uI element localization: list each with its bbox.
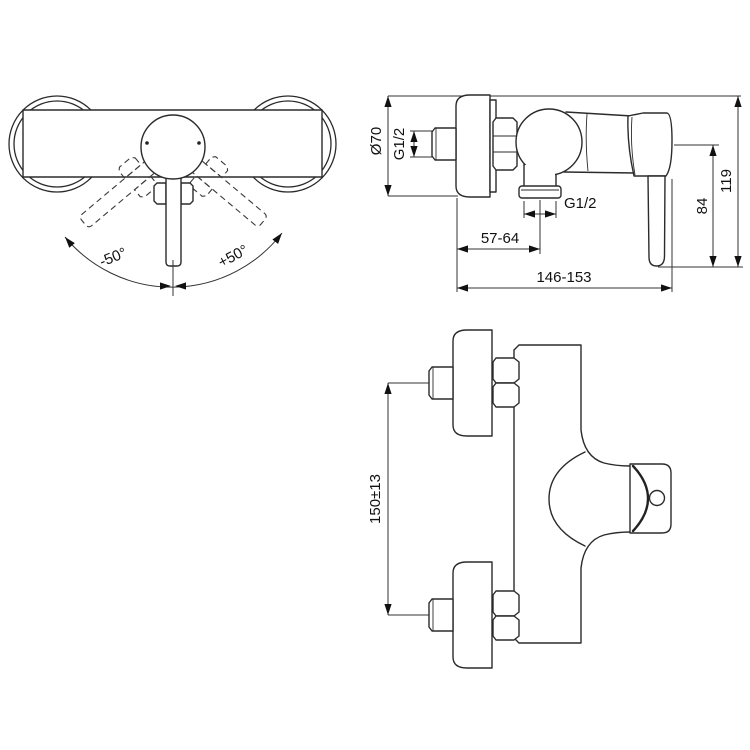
dimension-rosette-diameter: Ø70 xyxy=(368,96,392,196)
top-view: 150±13 xyxy=(367,330,671,668)
top-hex-nut-b xyxy=(493,383,519,407)
rosette-side xyxy=(456,95,490,197)
dim-label-rosette-diameter: Ø70 xyxy=(368,127,385,155)
top-hex-nut-a xyxy=(493,358,519,383)
dim-label-wall-to-outlet: 57-64 xyxy=(481,230,519,247)
handle-cap-side xyxy=(628,113,672,176)
side-view: Ø70 G1/2 G1/2 57-64 xyxy=(368,95,743,292)
dimension-total-height: 119 xyxy=(718,96,742,267)
handle-collar-left xyxy=(154,183,166,204)
hex-nut-side xyxy=(493,118,517,170)
dim-label-inlet-thread: G1/2 xyxy=(391,128,408,161)
handle-dot-right xyxy=(197,141,201,145)
dimension-inlet-center-distance: 150±13 xyxy=(367,383,429,615)
dimension-lever-height: 84 xyxy=(674,145,719,267)
handle-screw-hole xyxy=(650,491,665,506)
top-rosette xyxy=(453,330,492,436)
dimension-inlet-thread: G1/2 xyxy=(391,128,432,161)
handle-lever-side xyxy=(648,176,665,266)
dim-label-total-height: 119 xyxy=(718,169,735,193)
dim-label-outlet-thread: G1/2 xyxy=(564,195,597,212)
handle-collar-right xyxy=(181,183,193,204)
dim-label-inlet-center-distance: 150±13 xyxy=(367,474,384,524)
bottom-hex-nut-b xyxy=(493,616,519,640)
front-view: -50° +50° xyxy=(9,96,336,296)
bottom-rosette xyxy=(453,562,492,668)
outlet-flange xyxy=(519,186,561,198)
bottom-hex-nut-a xyxy=(493,591,519,616)
drawing-canvas: -50° +50° xyxy=(0,0,750,750)
dim-label-positive-angle: +50° xyxy=(215,242,251,272)
dim-label-total-depth: 146-153 xyxy=(536,269,591,286)
dim-label-negative-angle: -50° xyxy=(97,244,129,270)
dim-label-lever-height: 84 xyxy=(694,198,711,215)
handle-dot-left xyxy=(145,141,149,145)
handle-base-circle xyxy=(141,115,205,179)
technical-drawing: -50° +50° xyxy=(0,0,750,750)
dimension-wall-to-outlet: 57-64 xyxy=(457,198,540,292)
